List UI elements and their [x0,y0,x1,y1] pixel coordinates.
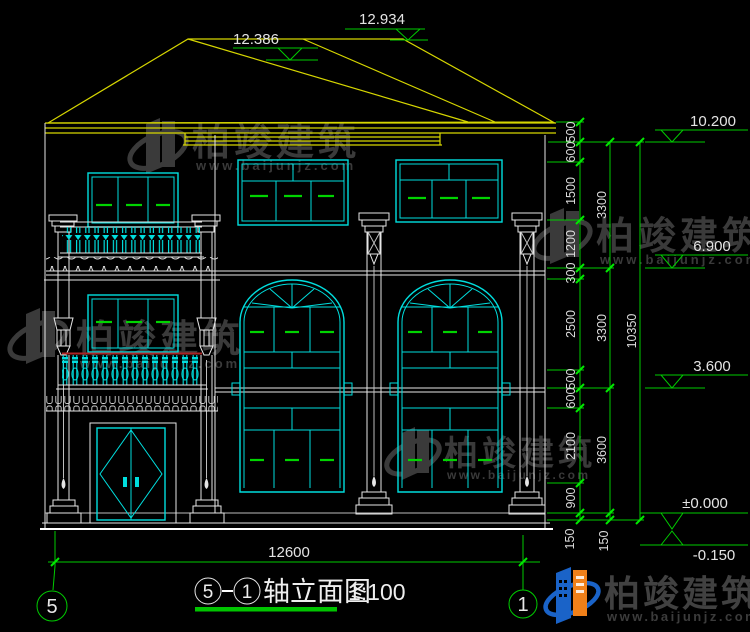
dim-label: 2500 [564,310,578,338]
roof [48,39,553,123]
title-axis-to: 1 [242,582,253,603]
level-marker-ground: ±0.000 [640,495,748,529]
balustrade [62,227,200,253]
dim-label: 500 [564,369,578,390]
level-marker-floor2: 3.600 [645,358,748,388]
dim-label: 500 [564,122,578,143]
dimension-bottom: 12600 [48,531,540,566]
dim-label: 900 [564,488,578,509]
level-marker-eave: 10.200 [645,113,748,142]
dim-label: 3300 [595,191,609,219]
axis-bubble-right: 1 [509,566,537,618]
watermark-logo-icon [382,427,445,481]
brand-site: www.baijunjz.com [606,609,750,624]
dentil-moulding [46,396,218,411]
dim-label: 600 [564,142,578,163]
brand-logo: 柏竣建筑 www.baijunjz.com [541,567,750,624]
watermark-logo-icon [528,208,595,266]
arched-window-right [390,280,510,492]
ornament-drop [205,478,209,489]
door-handle [135,477,139,487]
sill-bracket [390,383,398,395]
level-value: 12.934 [359,11,405,28]
roof-tiled-slope [48,39,553,123]
drawing-title: 5 1 轴立面图 1:100 [195,577,406,612]
sill-bracket [344,383,352,395]
dim-label: 150 [597,531,611,552]
watermark-brand: 柏竣建筑 [76,319,244,361]
roof-hip-line [303,39,495,122]
cad-canvas: 柏竣建筑 www.baijunjz.com 柏竣建筑 www.baijunjz.… [0,0,750,632]
level-value: 6.900 [693,238,731,255]
axis-number: 5 [46,596,57,618]
dim-label: 300 [564,263,578,284]
arched-window-left [232,280,352,492]
dim-label: 12600 [268,544,310,561]
scallop-moulding [46,257,218,271]
brand-name: 柏竣建筑 [604,573,750,614]
ornament-drop [62,478,66,489]
level-value: 12.386 [233,31,279,48]
dim-label: 2100 [564,432,578,460]
watermark-logo-icon [124,118,191,176]
title-underline [195,607,337,612]
sill-bracket [232,383,240,395]
level-marker-ridge-main: 12.934 [345,11,428,40]
level-value: ±0.000 [682,495,728,512]
dim-label: 10350 [625,314,639,349]
balcony-3f [46,222,218,271]
level-value: 3.600 [693,358,731,375]
sill-bracket [502,383,510,395]
door-handle [123,477,127,487]
axis-number: 1 [517,594,528,616]
dim-label: 1500 [564,177,578,205]
level-value: -0.150 [693,547,736,564]
level-value: 10.200 [690,113,736,130]
dim-label: 150 [563,529,577,550]
dim-label: 3300 [595,314,609,342]
level-marker-site: -0.150 [640,531,748,564]
elevation-drawing: 柏竣建筑 www.baijunjz.com 柏竣建筑 www.baijunjz.… [0,0,750,632]
entrance-door [90,423,176,523]
balcony-2f [46,354,218,412]
window-wing-3f [88,173,178,227]
dimension-chain-right: 500 600 1500 1200 300 2500 500 600 2100 … [547,118,644,551]
balustrade [62,355,200,385]
title-axis-from: 5 [203,582,214,603]
dim-label: 600 [564,388,578,409]
fanlight-mullions [410,284,490,308]
brand-logo-icon [541,567,603,624]
dim-label: 1200 [564,230,578,258]
ornament-drop [372,476,376,487]
axis-bubble-left: 5 [37,566,67,621]
title-scale: 1:100 [348,579,406,605]
fanlight-mullions [252,284,332,308]
window-right-3f [396,160,502,222]
dim-label: 3600 [595,436,609,464]
